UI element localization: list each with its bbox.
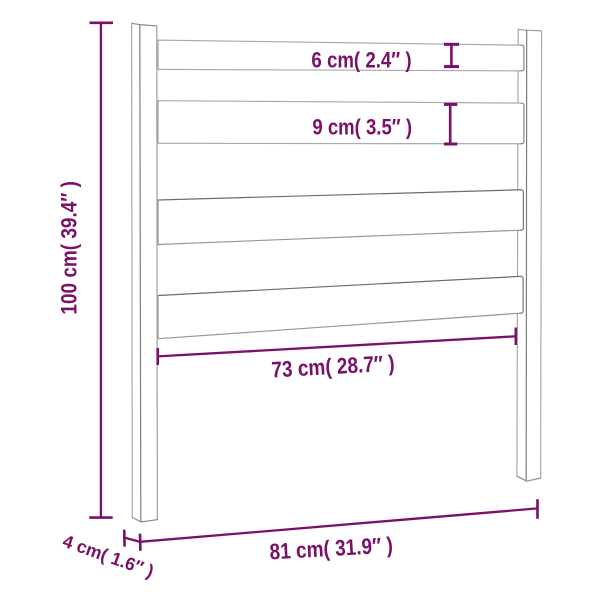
svg-text:100 cm( 39.4″ ): 100 cm( 39.4″ ) — [56, 181, 81, 315]
svg-text:9 cm( 3.5″ ): 9 cm( 3.5″ ) — [312, 115, 412, 140]
svg-text:6 cm( 2.4″ ): 6 cm( 2.4″ ) — [311, 47, 411, 72]
